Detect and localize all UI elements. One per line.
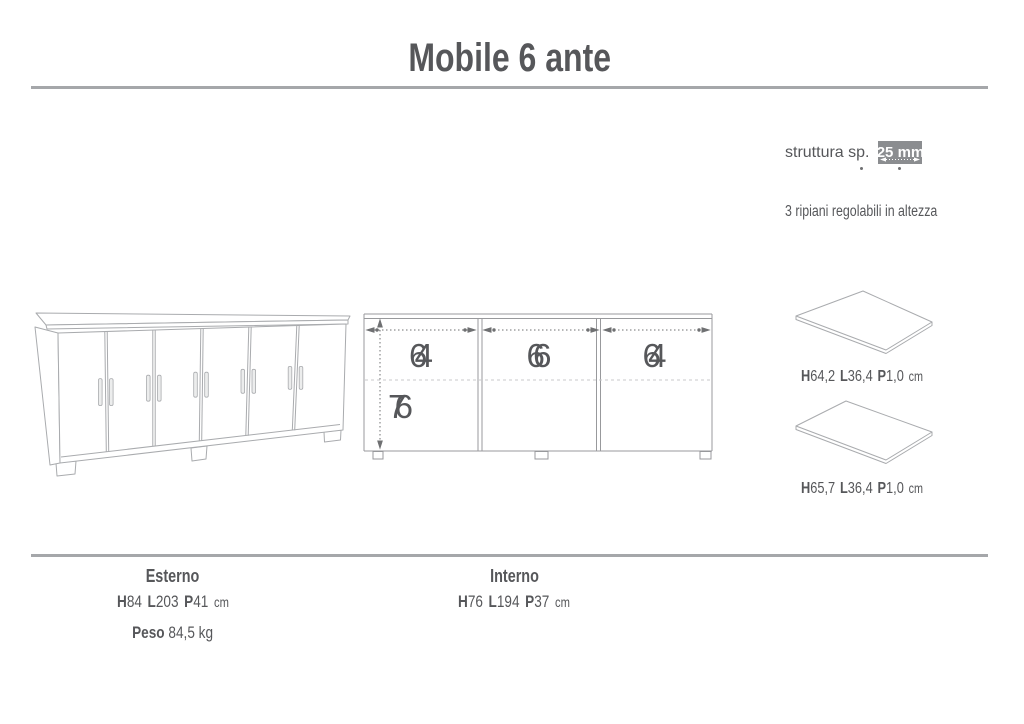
width-right-value: 64	[643, 337, 667, 374]
width-middle-value: 66	[527, 337, 552, 374]
top-divider-line	[31, 86, 988, 89]
structure-thickness-label: struttura sp.	[785, 144, 869, 162]
structure-thickness-value-box: 25 mm	[878, 141, 922, 164]
thickness-dim-dot-right	[898, 167, 901, 170]
interno-dimensions: H76L194P37cm	[407, 592, 621, 612]
esterno-weight: Peso 84,5 kg	[60, 623, 286, 643]
cabinet-foot-center	[191, 446, 207, 461]
structure-thickness-spec: struttura sp. 25 mm	[785, 141, 922, 164]
width-dimension-left	[367, 328, 475, 332]
width-dimension-right	[604, 328, 709, 332]
esterno-heading: Esterno	[60, 566, 286, 587]
thickness-dimension-arrows-icon	[878, 156, 922, 163]
cabinet-left-side	[35, 327, 60, 465]
width-dimension-middle	[484, 328, 598, 332]
diagram-foot-right	[700, 452, 711, 460]
bottom-divider-line	[31, 554, 988, 557]
page-title: Mobile 6 ante	[31, 36, 988, 81]
diagram-foot-center	[535, 452, 548, 460]
legend-interno: Interno H76L194P37cm	[407, 566, 621, 623]
legend-esterno: Esterno H84L203P41cm Peso 84,5 kg	[60, 566, 286, 654]
thickness-dim-dot-left	[860, 167, 863, 170]
esterno-dimensions: H84L203P41cm	[60, 592, 286, 612]
shelf-panel-1-dimensions: H64,2L36,4P1,0cm	[801, 368, 954, 386]
spec-sheet-page: Mobile 6 ante struttura sp. 25 mm 3 ripi…	[0, 0, 1024, 724]
height-dimension	[378, 320, 382, 448]
width-left-value: 64	[409, 337, 433, 374]
height-value: 76	[388, 388, 413, 425]
cabinet-front-view	[30, 303, 365, 488]
adjustable-shelves-note: 3 ripiani regolabili in altezza	[785, 203, 975, 221]
diagram-foot-left	[373, 452, 383, 460]
shelf-panel-2-drawing	[786, 398, 938, 470]
shelf-panel-2-dimensions: H65,7L36,4P1,0cm	[801, 480, 954, 498]
interno-heading: Interno	[407, 566, 621, 587]
shelf-panel-1-drawing	[786, 288, 938, 360]
interior-dimensions-diagram: 64 66 64 76	[362, 310, 716, 466]
